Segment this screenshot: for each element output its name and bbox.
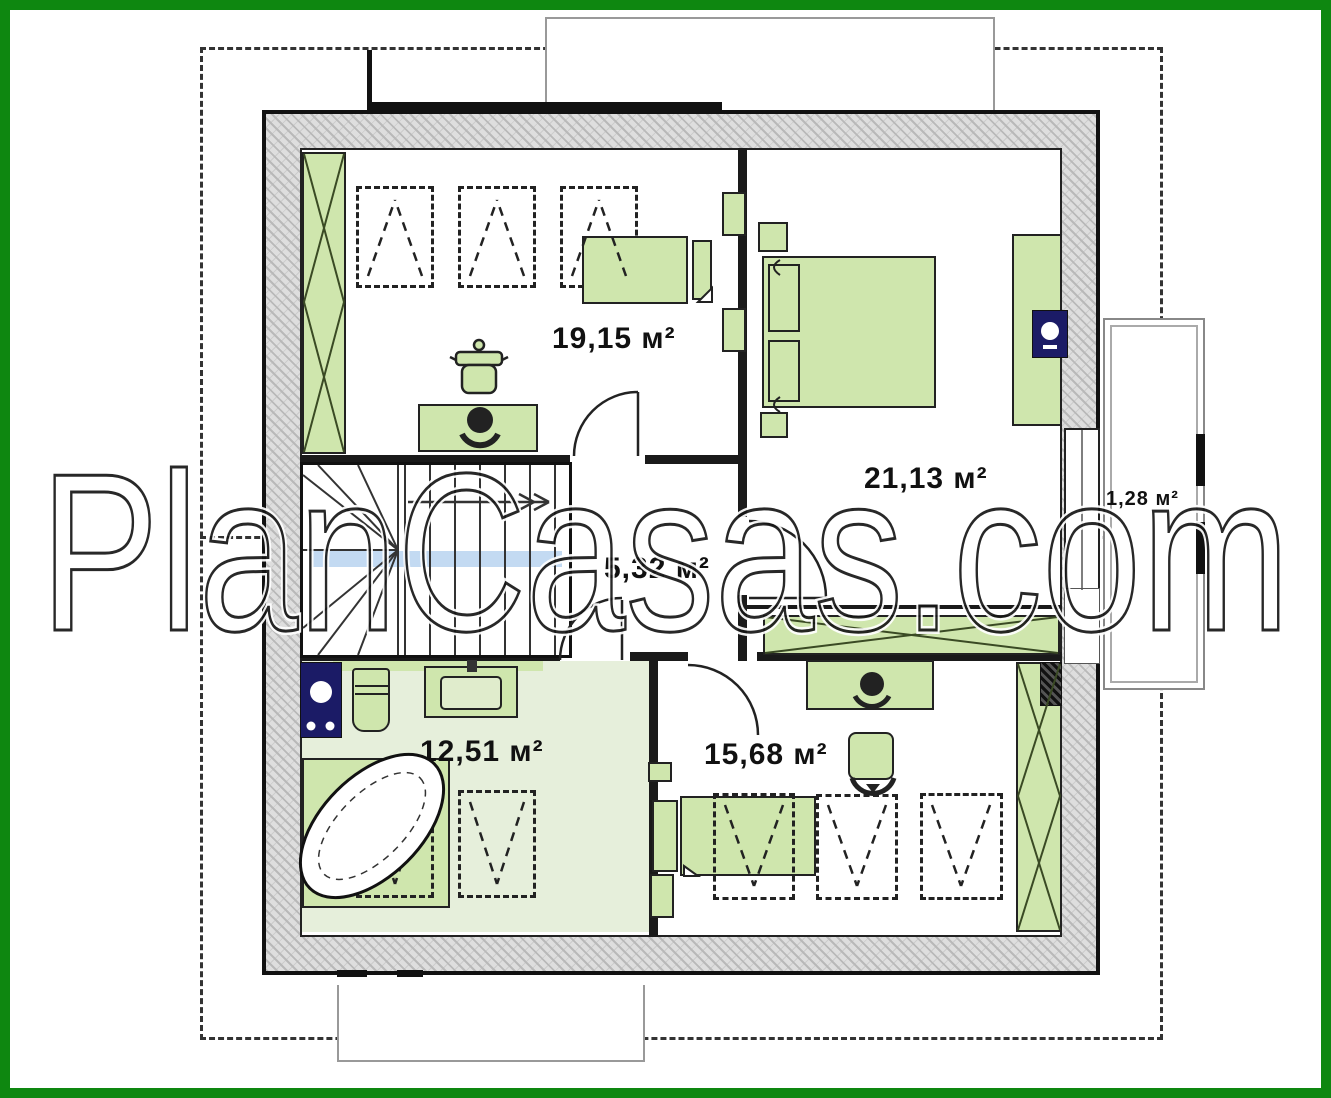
- storage-box-icon: [1040, 662, 1062, 706]
- skylight-dashed-icon: [713, 793, 795, 900]
- skylight-dashed-icon: [920, 793, 1003, 900]
- skylight-dashed-icon: [458, 186, 536, 288]
- wardrobe-row-icon: [763, 615, 1060, 655]
- room-area-label: 1,28 м²: [1106, 488, 1179, 511]
- pillow-icon: [692, 240, 712, 300]
- room-area-label: 21,13 м²: [864, 462, 988, 496]
- bottom-wall-tick-2: [397, 970, 423, 977]
- tv-icon: [1032, 310, 1068, 358]
- nightstand-icon: [722, 308, 746, 352]
- balcony-door-leaf-1: [1196, 434, 1205, 486]
- balcony-window: [1064, 428, 1100, 592]
- skylight-dashed-icon: [458, 790, 536, 898]
- washing-machine-icon: [300, 662, 342, 738]
- desk-icon: [418, 404, 538, 452]
- top-wall-window-band: [370, 102, 722, 110]
- room-area-label: 5,32 м²: [604, 552, 710, 586]
- bottom-wall-tick-1: [337, 970, 367, 977]
- skylight-dashed-icon: [356, 186, 434, 288]
- nightstand-icon: [722, 192, 746, 236]
- wardrobe-icon: [302, 152, 346, 454]
- nightstand-icon: [760, 412, 788, 438]
- room-area-label: 12,51 м²: [420, 735, 544, 769]
- partition-top-left-room-b: [645, 455, 745, 464]
- room-area-label: 15,68 м²: [704, 738, 828, 772]
- nightstand-icon: [648, 762, 672, 782]
- floor-plan-canvas: 19,15 м² 21,13 м² 5,32 м² 12,51 м² 15,68…: [0, 0, 1331, 1098]
- washbasin-bowl: [440, 676, 502, 710]
- pillow-icon: [768, 340, 800, 402]
- partition-bedrooms-vert-b: [738, 595, 747, 661]
- chimney-tick: [367, 50, 372, 110]
- nightstand-icon: [758, 222, 788, 252]
- skylight-dashed-icon: [356, 790, 434, 898]
- desk-icon: [806, 660, 934, 710]
- toilet-icon: [352, 668, 390, 732]
- balcony-door-opening: [1064, 588, 1100, 664]
- skylight-dashed-icon: [816, 794, 898, 900]
- balcony-door-leaf-2: [1196, 522, 1205, 574]
- dormer-top: [545, 17, 995, 110]
- nightstand-icon: [650, 874, 674, 918]
- stairwell: [300, 462, 572, 658]
- room-area-label: 19,15 м²: [552, 322, 676, 356]
- bed-icon: [582, 236, 688, 304]
- swivel-chair-icon: [848, 732, 894, 780]
- wardrobe-niche-line: [747, 605, 1062, 609]
- pillow-icon: [768, 264, 800, 332]
- pillow-icon: [652, 800, 678, 872]
- partition-bathroom-top-b: [630, 652, 688, 661]
- dormer-bottom: [337, 985, 645, 1062]
